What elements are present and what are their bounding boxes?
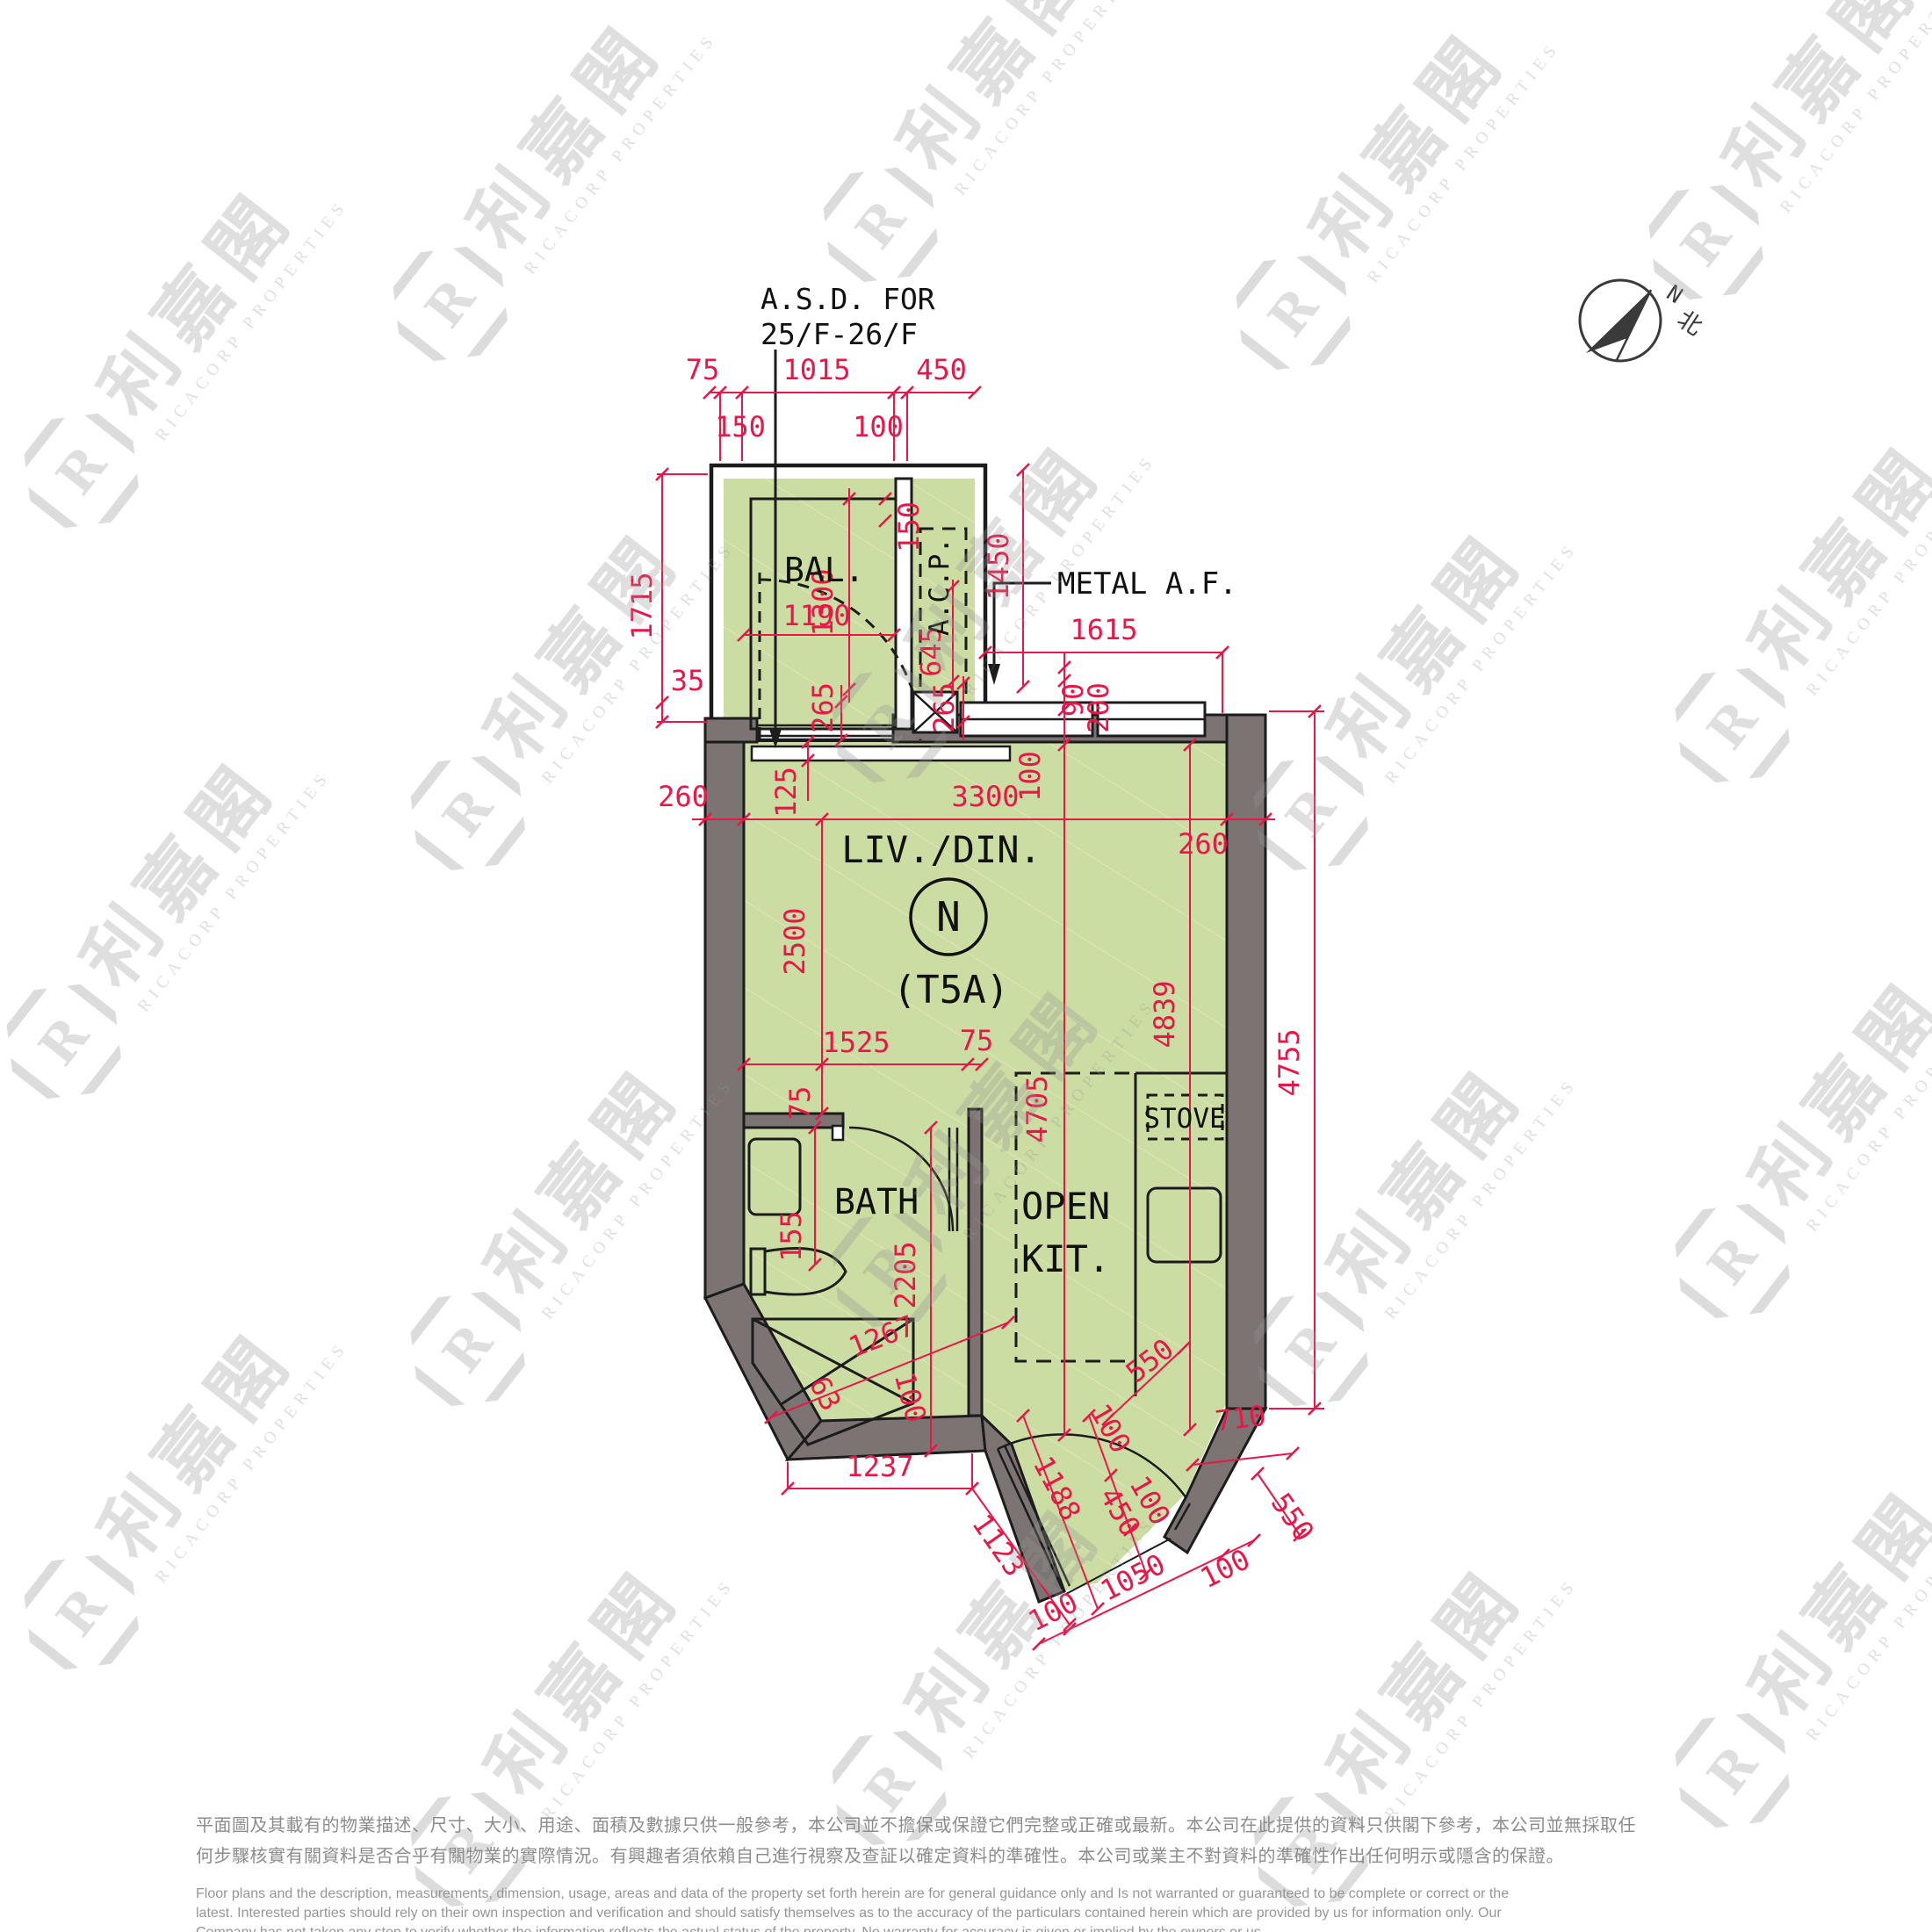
stove-label: STOVE	[1143, 1103, 1225, 1135]
dim-label: 710	[1214, 1399, 1268, 1438]
unit-type-label: (T5A)	[893, 968, 1009, 1013]
dim-label: 1615	[1070, 613, 1137, 646]
dim-label: 1015	[782, 353, 850, 386]
bulkhead-line	[752, 746, 1010, 761]
dim-label: 2500	[778, 907, 811, 975]
dim-label: 265	[806, 682, 840, 733]
dim-label: 1450	[982, 532, 1015, 600]
disclaimer-en-line2: latest. Interested parties should rely o…	[196, 1904, 1750, 1923]
dim-label: 100	[1023, 1585, 1084, 1638]
asd-note-line1: A.S.D. FOR	[761, 282, 935, 316]
dim-label: 450	[916, 353, 967, 386]
dim-label: 75	[960, 1024, 994, 1057]
dim-label: 100	[1013, 751, 1047, 802]
bath-label: BATH	[834, 1182, 919, 1222]
unit-letter: N	[936, 893, 961, 941]
wall-top-left-stub	[705, 718, 757, 742]
dim-label: 2205	[889, 1241, 922, 1308]
dim-label: 4755	[1272, 1028, 1306, 1096]
disclaimer-zh-line1: 平面圖及其載有的物業描述、尺寸、大小、用途、面積及數據只供一般參考，本公司並不擔…	[196, 1811, 1750, 1842]
bath-door-stop	[833, 1126, 843, 1140]
open-kit-label-line2: KIT.	[1021, 1237, 1110, 1280]
living-dining-label: LIV./DIN.	[841, 828, 1042, 871]
open-kit-label-line1: OPEN	[1021, 1185, 1110, 1228]
dim-label: 260	[1178, 827, 1229, 861]
dim-label: 150	[892, 501, 926, 552]
wall-kitchen-divider	[969, 1109, 982, 1416]
disclaimer-en-line1: Floor plans and the description, measure…	[196, 1885, 1750, 1904]
dim-label: 100	[1195, 1542, 1256, 1595]
dim-label: 1715	[625, 572, 659, 639]
compass-north-cjk-label: 北	[1672, 306, 1707, 342]
dim-label: 265	[927, 682, 961, 733]
dim-label: 155	[775, 1211, 808, 1262]
dim-label: 150	[715, 410, 766, 443]
asd-note-line2: 25/F-26/F	[761, 317, 918, 351]
acp-label: A.C.P.	[924, 537, 955, 636]
dim-label: 4839	[1148, 980, 1181, 1048]
disclaimer-en-line3: Company has not taken any step to verify…	[196, 1923, 1750, 1932]
metal-af-leader-arrow	[988, 664, 1000, 685]
dim-label: 4705	[1020, 1075, 1054, 1143]
dim-label: 1237	[846, 1450, 913, 1483]
dim-label: 260	[658, 780, 709, 813]
wall-left	[705, 718, 744, 1298]
dim-label: 200	[1082, 682, 1115, 733]
dim-label: 100	[853, 410, 904, 443]
compass-n-label: N	[1662, 280, 1687, 309]
dim-label: 75	[686, 353, 720, 386]
disclaimer-block: 平面圖及其載有的物業描述、尺寸、大小、用途、面積及數據只供一般參考，本公司並不擔…	[196, 1811, 1750, 1932]
disclaimer-zh-line2: 何步驟核實有關資料是否合乎有關物業的實際情況。有興趣者須依賴自己進行視察及查証以…	[196, 1842, 1750, 1872]
dim-label: 1525	[822, 1026, 890, 1059]
metal-af-label: METAL A.F.	[1057, 566, 1237, 602]
dim-label: 125	[769, 767, 803, 818]
floorplan-page: 75 1015 450 150 100 1715 35 1300 150 119…	[0, 0, 1932, 1932]
floorplan-drawing: 75 1015 450 150 100 1715 35 1300 150 119…	[0, 0, 1932, 1932]
north-arrow-icon: N 北	[1580, 280, 1707, 362]
dim-label: 35	[671, 664, 705, 697]
balcony-label: BAL.	[784, 551, 865, 589]
dim-label: 1190	[782, 599, 850, 632]
dim-label: 3300	[951, 780, 1019, 813]
dim-label: 75	[783, 1086, 817, 1121]
